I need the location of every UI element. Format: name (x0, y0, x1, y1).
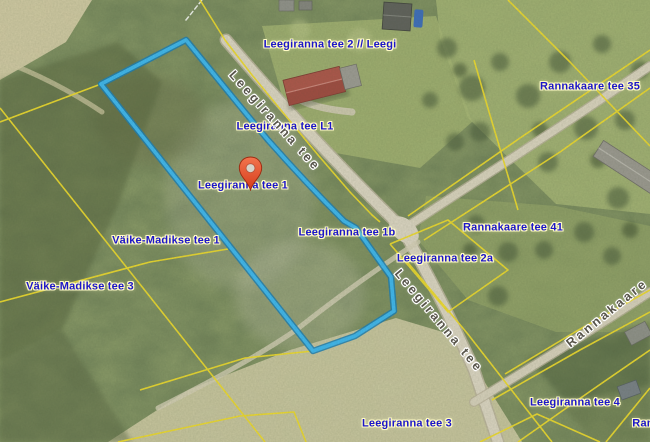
leegiranna-tee-road-lower-label: Leegiranna tee (392, 267, 486, 376)
vaike-madikse-tee-3-label: Väike-Madikse tee 3 (26, 281, 134, 294)
leegiranna-tee-4-label: Leegiranna tee 4 (530, 397, 620, 410)
map-labels-layer: Leegiranna tee 2 // LeegiRannakaare tee … (0, 0, 650, 442)
rannakaare-tee-41-label: Rannakaare tee 41 (463, 222, 563, 235)
rannakaare-road-label: Rannakaare (563, 276, 650, 350)
leegiranna-tee-1b-label: Leegiranna tee 1b (299, 227, 396, 240)
rannakaare-tee-35-label: Rannakaare tee 35 (540, 81, 640, 94)
location-pin[interactable] (237, 156, 264, 191)
vaike-madikse-tee-1-label: Väike-Madikse tee 1 (112, 235, 220, 248)
leegiranna-tee-2-leegi-label: Leegiranna tee 2 // Leegi (264, 39, 397, 52)
rannakaare-partial-label: Ran (632, 418, 650, 431)
location-pin-icon (237, 156, 264, 191)
map-viewport[interactable]: Leegiranna tee 2 // LeegiRannakaare tee … (0, 0, 650, 442)
leegiranna-tee-2a-label: Leegiranna tee 2a (397, 253, 493, 266)
leegiranna-tee-3-label: Leegiranna tee 3 (362, 418, 452, 431)
